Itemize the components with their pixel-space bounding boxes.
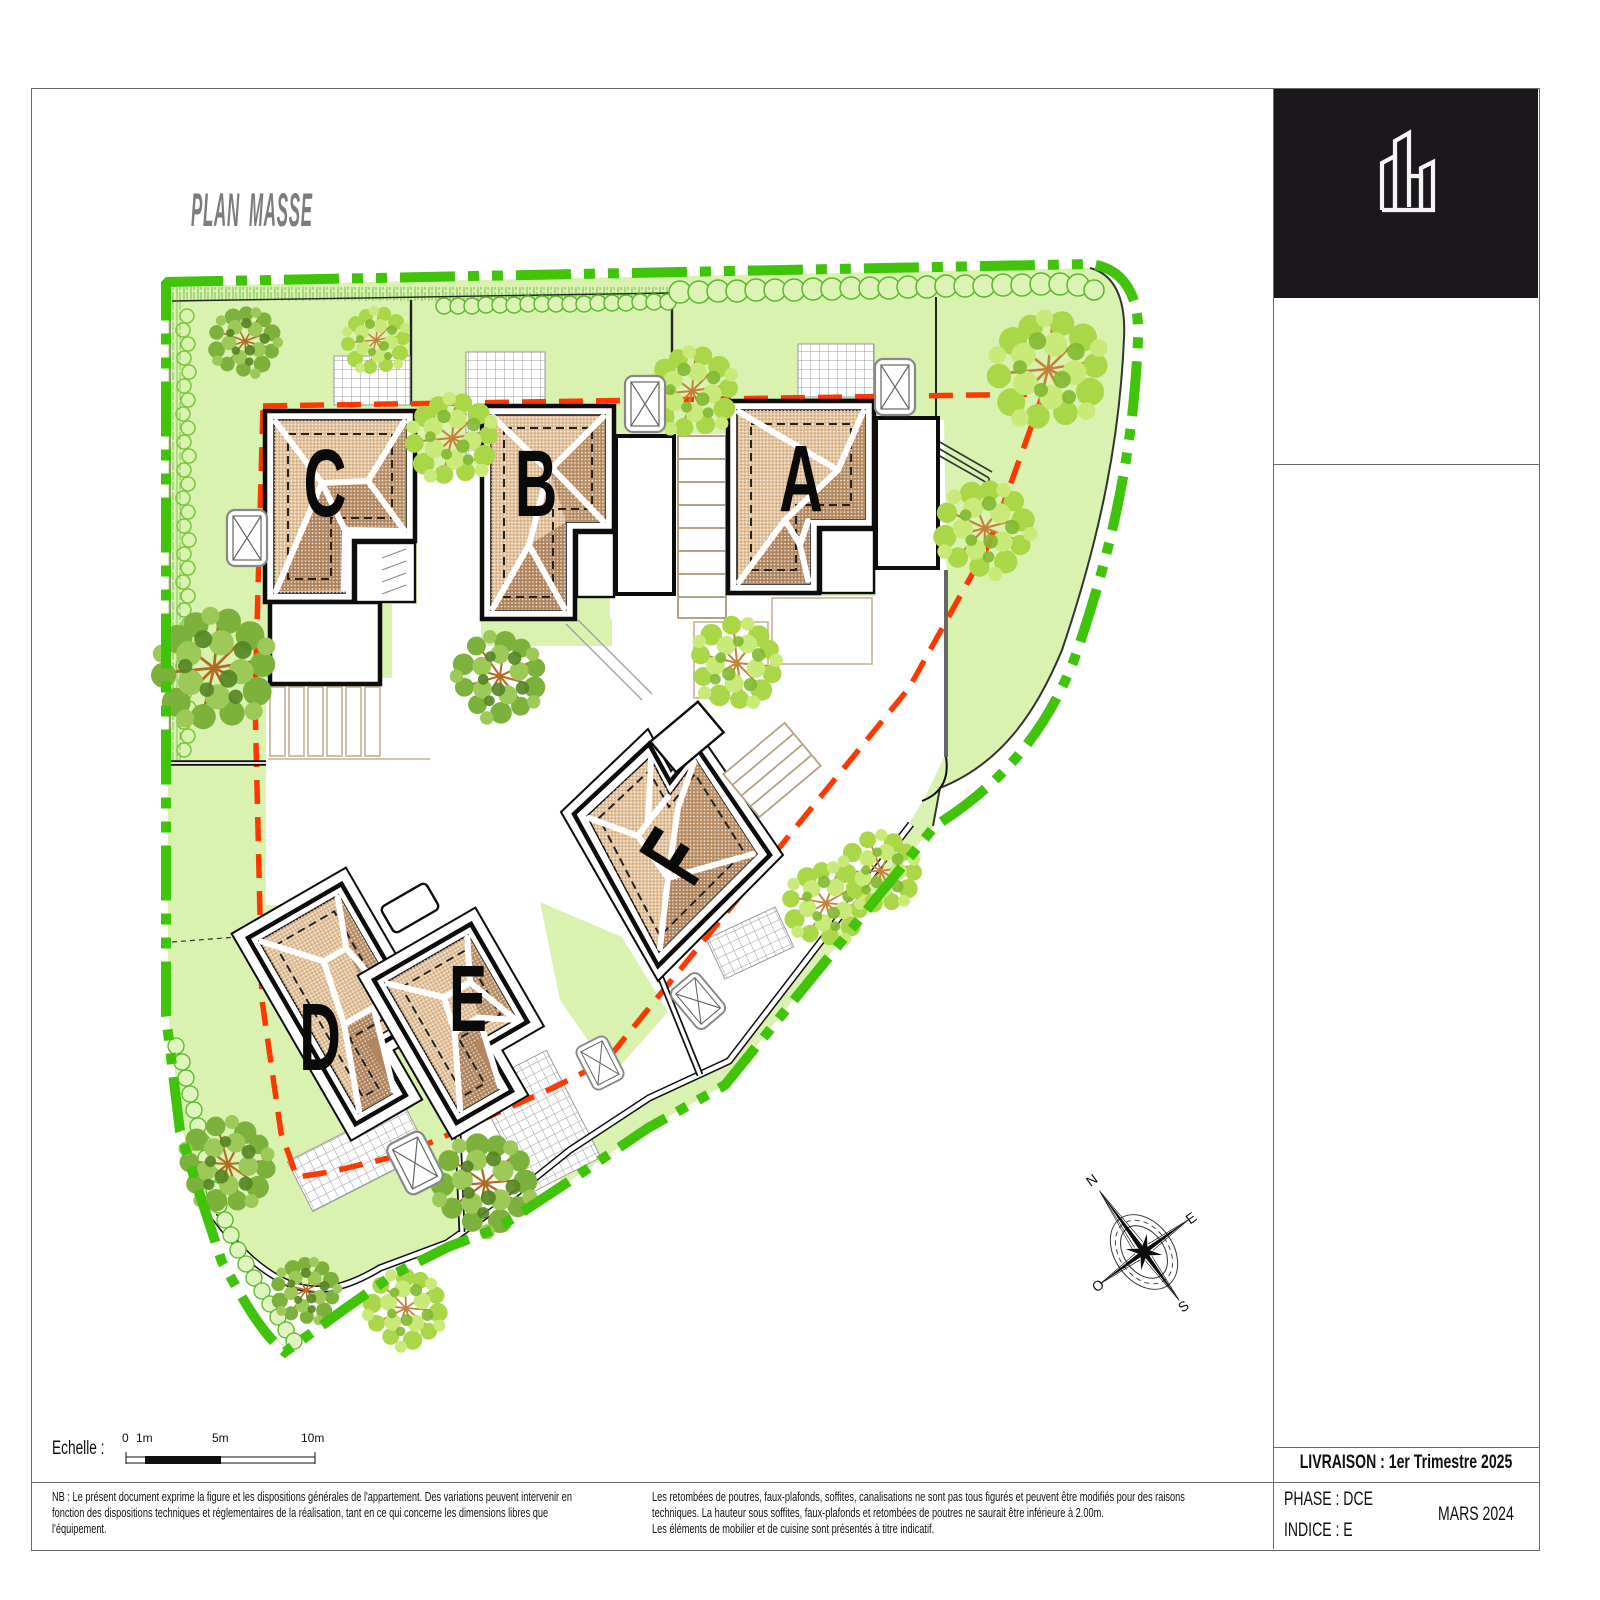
- svg-text:D: D: [299, 983, 341, 1091]
- svg-text:A: A: [779, 425, 823, 531]
- svg-text:C: C: [304, 429, 347, 536]
- svg-text:E: E: [1182, 1209, 1199, 1227]
- svg-text:N: N: [1083, 1171, 1101, 1190]
- svg-text:E: E: [449, 945, 487, 1052]
- svg-text:B: B: [515, 429, 558, 536]
- svg-text:O: O: [1089, 1276, 1107, 1295]
- svg-text:S: S: [1175, 1297, 1192, 1315]
